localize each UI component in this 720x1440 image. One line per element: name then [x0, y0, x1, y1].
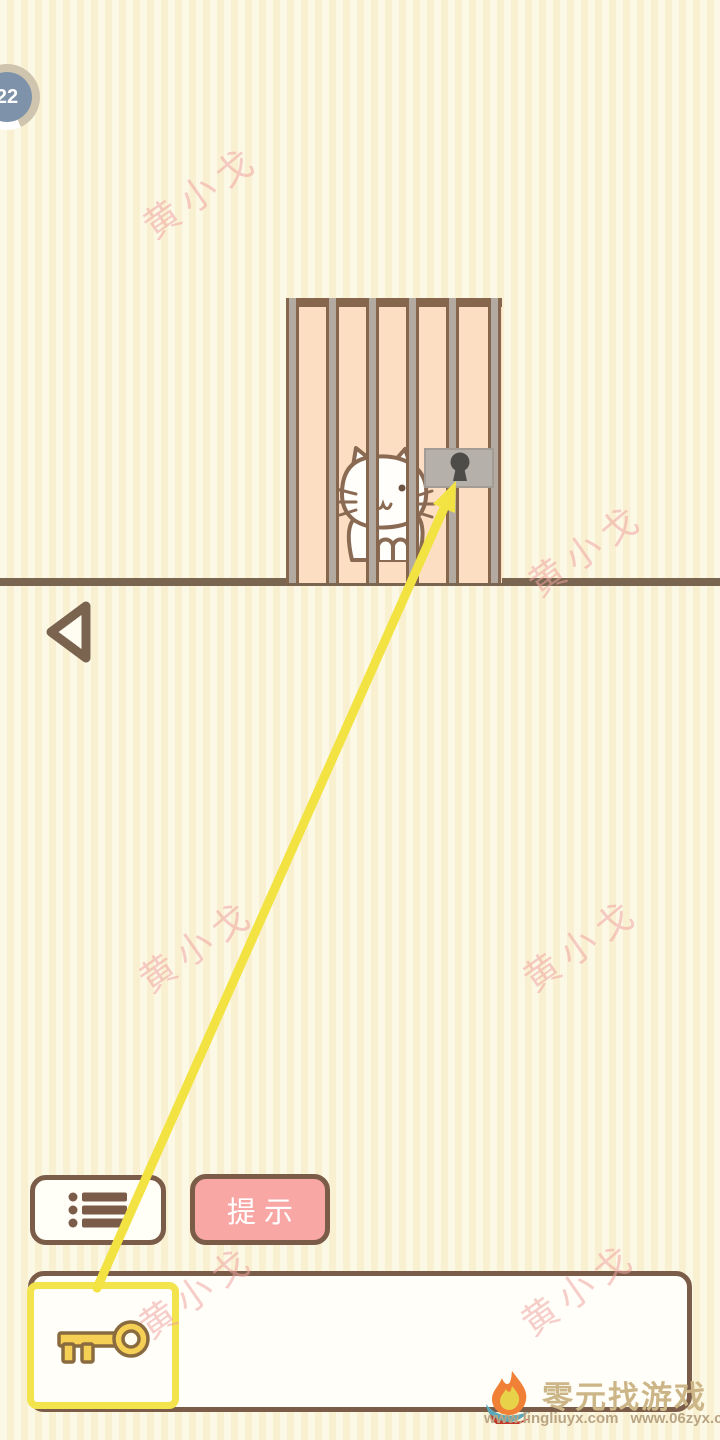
back-arrow-icon: [51, 606, 86, 658]
watermark-text: 黄小戈: [127, 885, 265, 1003]
watermark-text: 黄小戈: [131, 131, 269, 249]
watermark-text: 黄小戈: [511, 884, 649, 1002]
cage-bar: [286, 298, 299, 583]
keyhole-icon: [426, 450, 492, 486]
cage-bar: [406, 298, 419, 583]
cage-top-bar: [286, 298, 502, 307]
lock[interactable]: [424, 448, 494, 488]
watermark-text: 黄小戈: [516, 489, 654, 607]
level-badge[interactable]: 22: [0, 64, 40, 130]
back-button[interactable]: [36, 596, 98, 668]
footer-watermark: 零元找游戏 www.lingliuyx.comwww.06zyx.com: [482, 1366, 720, 1440]
footer-urls: www.lingliuyx.comwww.06zyx.com: [484, 1410, 720, 1427]
cage-bar: [326, 298, 339, 583]
level-number: 22: [0, 86, 18, 109]
list-icon: [65, 1186, 131, 1234]
key-icon: [51, 1317, 155, 1375]
cage-bar: [488, 298, 501, 583]
hint-button[interactable]: 提示: [190, 1174, 330, 1245]
menu-button[interactable]: [30, 1175, 166, 1245]
hint-button-label: 提示: [219, 1189, 301, 1231]
game-screen: 22: [0, 0, 720, 1440]
footer-url-1: www.lingliuyx.com: [484, 1410, 618, 1427]
cage: [286, 298, 502, 583]
cat[interactable]: [286, 298, 502, 583]
cage-bar: [366, 298, 379, 583]
cage-bar: [446, 298, 459, 583]
level-badge-circle: 22: [0, 72, 32, 122]
footer-url-2: www.06zyx.com: [630, 1410, 720, 1427]
inventory-slot-key[interactable]: [27, 1282, 179, 1409]
